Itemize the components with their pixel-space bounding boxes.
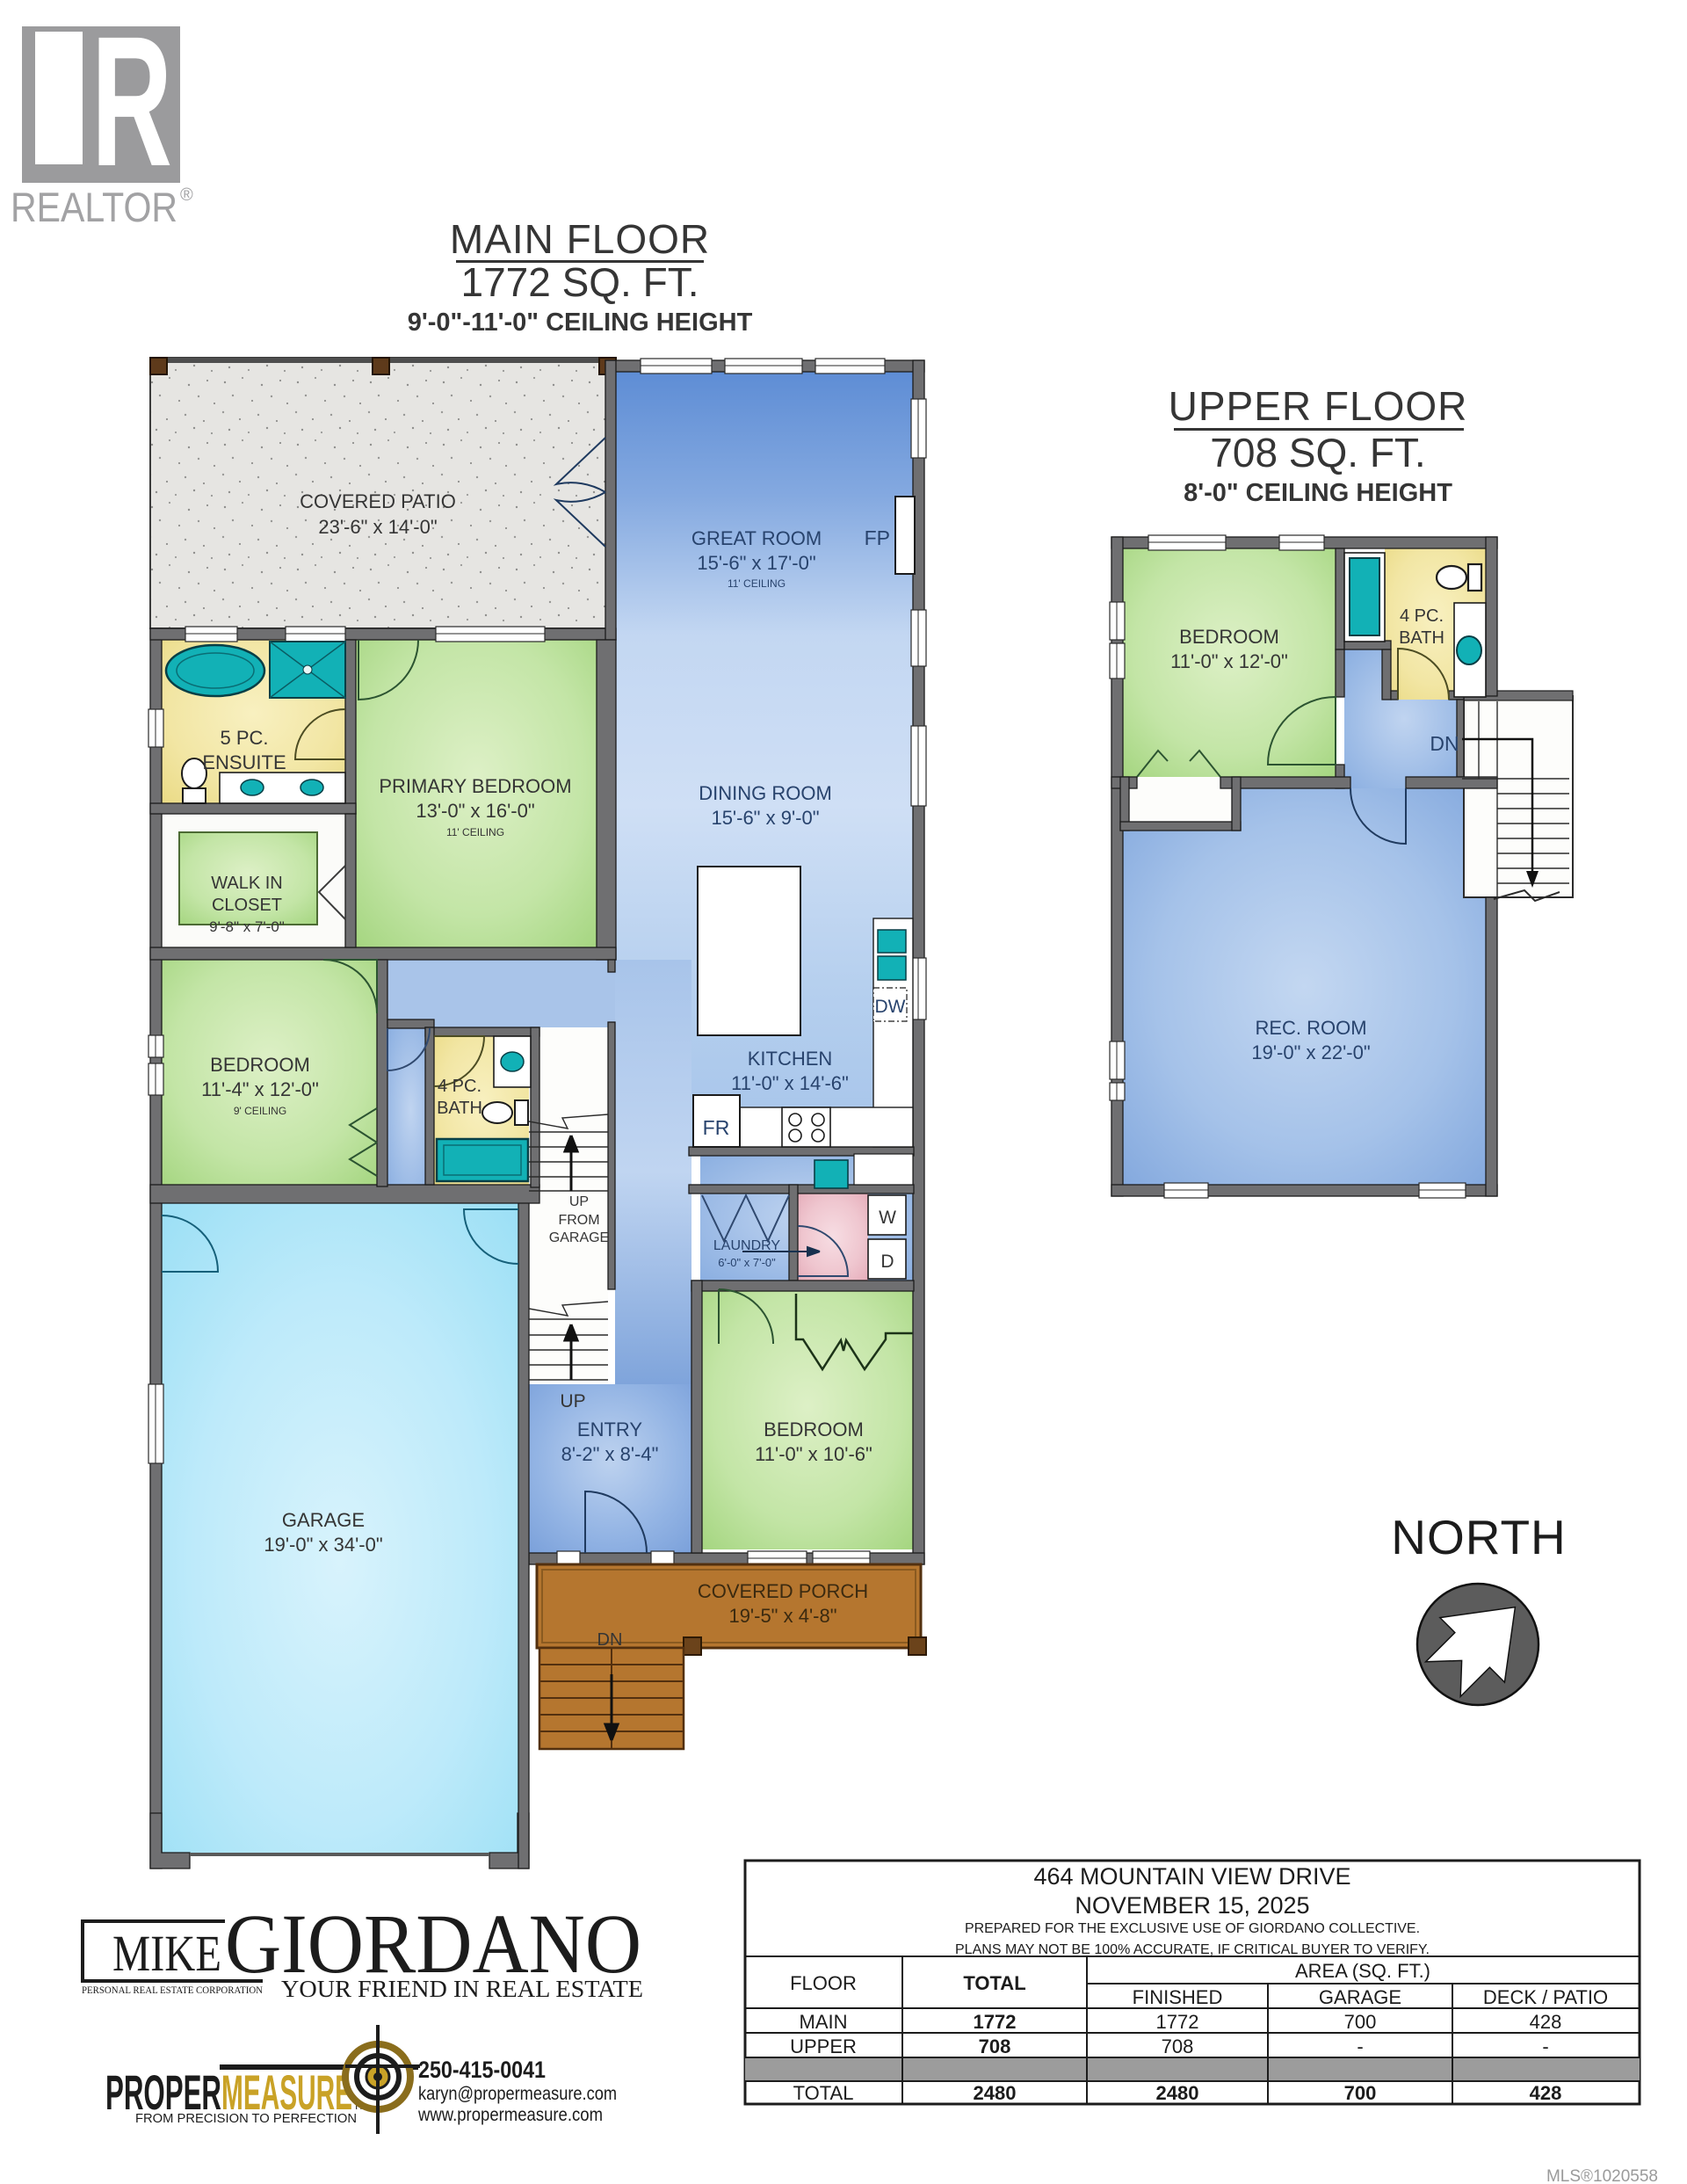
svg-text:4 PC.: 4 PC. [438, 1077, 481, 1096]
svg-text:2480: 2480 [1156, 2082, 1199, 2104]
svg-text:ENTRY: ENTRY [577, 1419, 642, 1440]
svg-text:D: D [880, 1252, 894, 1272]
svg-text:1772: 1772 [1156, 2011, 1199, 2033]
svg-text:428: 428 [1530, 2011, 1562, 2033]
svg-text:19'-0" x 22'-0": 19'-0" x 22'-0" [1251, 1041, 1370, 1063]
svg-text:BATH: BATH [1399, 628, 1444, 648]
svg-text:GARAGE: GARAGE [282, 1509, 365, 1531]
svg-text:FLOOR: FLOOR [790, 1972, 857, 1994]
svg-text:8'-0" CEILING HEIGHT: 8'-0" CEILING HEIGHT [1184, 479, 1452, 507]
svg-text:11' CEILING: 11' CEILING [446, 826, 504, 838]
svg-text:FR: FR [703, 1116, 730, 1139]
svg-text:GARAGE: GARAGE [1319, 1986, 1401, 2008]
svg-text:19'-0" x 34'-0": 19'-0" x 34'-0" [264, 1534, 382, 1556]
svg-text:PERSONAL REAL ESTATE CORPORATI: PERSONAL REAL ESTATE CORPORATION [82, 1984, 263, 1996]
svg-text:DINING ROOM: DINING ROOM [699, 782, 832, 804]
svg-text:11'-4" x 12'-0": 11'-4" x 12'-0" [201, 1078, 319, 1100]
svg-text:KITCHEN: KITCHEN [748, 1048, 833, 1070]
svg-text:11'-0" x 10'-6": 11'-0" x 10'-6" [755, 1443, 872, 1465]
svg-text:TOTAL: TOTAL [963, 1972, 1025, 1994]
svg-text:®: ® [180, 185, 193, 205]
svg-text:5 PC.: 5 PC. [220, 727, 268, 749]
svg-text:1772 SQ. FT.: 1772 SQ. FT. [460, 259, 699, 305]
svg-text:-: - [1542, 2035, 1548, 2057]
svg-text:9'-8" x 7'-0": 9'-8" x 7'-0" [209, 918, 285, 935]
svg-text:AREA (SQ. FT.): AREA (SQ. FT.) [1295, 1960, 1430, 1982]
svg-text:11'-0" x 12'-0": 11'-0" x 12'-0" [1170, 650, 1288, 672]
svg-text:CLOSET: CLOSET [212, 896, 282, 915]
svg-text:NOVEMBER 15, 2025: NOVEMBER 15, 2025 [1075, 1892, 1309, 1919]
svg-text:700: 700 [1344, 2011, 1377, 2033]
svg-text:15'-6" x 17'-0": 15'-6" x 17'-0" [697, 552, 815, 574]
svg-text:15'-6" x 9'-0": 15'-6" x 9'-0" [711, 807, 819, 829]
svg-text:PREPARED FOR THE EXCLUSIVE USE: PREPARED FOR THE EXCLUSIVE USE OF GIORDA… [965, 1921, 1420, 1936]
svg-text:250-415-0041: 250-415-0041 [418, 2057, 546, 2083]
svg-text:www.propermeasure.com: www.propermeasure.com [417, 2105, 603, 2125]
svg-text:R: R [91, 0, 172, 205]
svg-text:COVERED PATIO: COVERED PATIO [300, 490, 456, 512]
svg-text:MAIN: MAIN [800, 2011, 848, 2033]
svg-text:NORTH: NORTH [1391, 1510, 1567, 1564]
svg-text:BEDROOM: BEDROOM [210, 1054, 310, 1076]
svg-text:karyn@propermeasure.com: karyn@propermeasure.com [418, 2084, 617, 2104]
svg-text:708: 708 [979, 2035, 1011, 2057]
svg-text:9' CEILING: 9' CEILING [234, 1105, 286, 1117]
svg-text:FROM: FROM [558, 1213, 599, 1228]
svg-text:DN: DN [597, 1630, 623, 1650]
svg-text:464 MOUNTAIN VIEW DRIVE: 464 MOUNTAIN VIEW DRIVE [1033, 1863, 1350, 1890]
svg-text:UP: UP [560, 1391, 585, 1411]
svg-text:DW: DW [875, 997, 906, 1017]
svg-text:BEDROOM: BEDROOM [764, 1419, 864, 1440]
svg-text:DECK / PATIO: DECK / PATIO [1483, 1986, 1608, 2008]
svg-text:FROM PRECISION TO PERFECTION: FROM PRECISION TO PERFECTION [135, 2111, 357, 2126]
svg-text:6'-0" x 7'-0": 6'-0" x 7'-0" [718, 1256, 776, 1269]
svg-text:13'-0" x 16'-0": 13'-0" x 16'-0" [416, 800, 534, 822]
svg-text:BATH: BATH [437, 1099, 482, 1118]
svg-text:LAUNDRY: LAUNDRY [713, 1238, 781, 1253]
svg-text:19'-5" x 4'-8": 19'-5" x 4'-8" [728, 1605, 836, 1627]
svg-text:2480: 2480 [974, 2082, 1017, 2104]
svg-text:11' CEILING: 11' CEILING [728, 577, 786, 590]
svg-text:9'-0"-11'-0" CEILING HEIGHT: 9'-0"-11'-0" CEILING HEIGHT [408, 308, 753, 337]
svg-text:4 PC.: 4 PC. [1400, 606, 1444, 626]
svg-text:DN: DN [1430, 732, 1459, 755]
svg-text:REALTOR: REALTOR [11, 184, 177, 230]
svg-text:UPPER FLOOR: UPPER FLOOR [1169, 383, 1468, 429]
svg-text:MAIN FLOOR: MAIN FLOOR [450, 216, 710, 262]
svg-text:23'-6" x 14'-0": 23'-6" x 14'-0" [318, 516, 437, 538]
svg-text:MLS®1020558: MLS®1020558 [1546, 2167, 1658, 2184]
svg-text:11'-0" x 14'-6": 11'-0" x 14'-6" [731, 1072, 849, 1094]
svg-text:W: W [879, 1208, 896, 1228]
svg-text:PRIMARY BEDROOM: PRIMARY BEDROOM [379, 775, 571, 797]
svg-text:-: - [1357, 2035, 1363, 2057]
svg-text:GARAGE: GARAGE [549, 1230, 609, 1245]
svg-text:ENSUITE: ENSUITE [202, 751, 286, 773]
svg-text:FP: FP [865, 526, 890, 549]
svg-text:TOTAL: TOTAL [793, 2082, 854, 2104]
svg-text:PLANS MAY NOT BE 100% ACCURATE: PLANS MAY NOT BE 100% ACCURATE, IF CRITI… [955, 1942, 1430, 1957]
svg-text:BEDROOM: BEDROOM [1179, 626, 1279, 648]
svg-text:WALK IN: WALK IN [211, 874, 283, 893]
svg-text:UPPER: UPPER [790, 2035, 857, 2057]
svg-text:YOUR FRIEND IN REAL ESTATE: YOUR FRIEND IN REAL ESTATE [281, 1976, 643, 2002]
svg-text:708 SQ. FT.: 708 SQ. FT. [1210, 430, 1425, 475]
svg-text:8'-2" x 8'-4": 8'-2" x 8'-4" [561, 1443, 659, 1465]
svg-text:UP: UP [569, 1194, 589, 1209]
svg-text:1772: 1772 [974, 2011, 1017, 2033]
svg-text:700: 700 [1344, 2082, 1377, 2104]
svg-text:708: 708 [1162, 2035, 1194, 2057]
svg-text:MIKE: MIKE [112, 1925, 221, 1982]
svg-text:REC. ROOM: REC. ROOM [1255, 1017, 1366, 1039]
svg-text:COVERED PORCH: COVERED PORCH [698, 1580, 868, 1602]
svg-text:FINISHED: FINISHED [1133, 1986, 1223, 2008]
svg-text:428: 428 [1530, 2082, 1562, 2104]
svg-text:GREAT ROOM: GREAT ROOM [691, 527, 822, 549]
